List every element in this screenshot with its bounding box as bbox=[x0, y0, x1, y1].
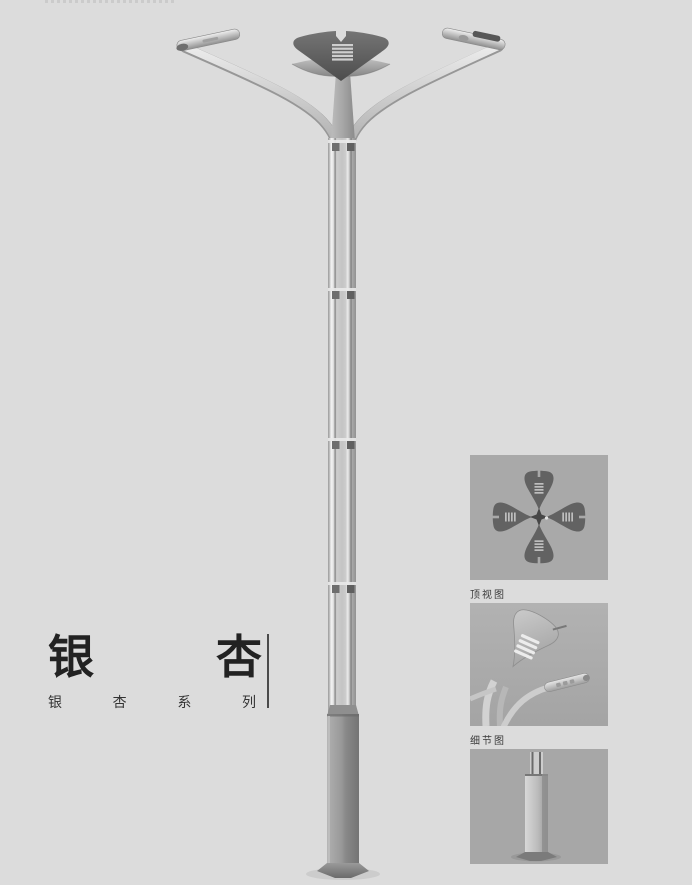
detail-column: 顶视图 bbox=[470, 455, 608, 864]
detail-view-drawing bbox=[470, 603, 608, 726]
title-block: 银 杏 银 杏 系 列 bbox=[48, 632, 262, 712]
base-view-image bbox=[470, 749, 608, 864]
detail-view-image bbox=[470, 603, 608, 726]
top-view-image bbox=[470, 455, 608, 580]
lamp-crown-leaf bbox=[293, 31, 388, 81]
left-lamp-head bbox=[175, 28, 241, 52]
subtitle-char-4: 列 bbox=[242, 692, 256, 712]
lamp-pole bbox=[328, 138, 356, 714]
title-char-2: 杏 bbox=[216, 632, 262, 683]
title-divider-line bbox=[267, 634, 269, 708]
right-lamp-head bbox=[441, 24, 506, 51]
subtitle-char-2: 杏 bbox=[113, 692, 127, 712]
lamp-base bbox=[306, 705, 380, 880]
catalog-page: 银 杏 银 杏 系 列 bbox=[0, 0, 692, 885]
top-view-label: 顶视图 bbox=[470, 580, 608, 603]
title-char-1: 银 bbox=[48, 632, 94, 683]
top-view-drawing bbox=[470, 455, 608, 580]
detail-view-label: 细节图 bbox=[470, 726, 608, 749]
base-view-drawing bbox=[470, 749, 608, 864]
subtitle-char-3: 系 bbox=[177, 692, 191, 712]
lamp-stem bbox=[331, 72, 355, 142]
subtitle-char-1: 银 bbox=[48, 692, 62, 712]
page-title: 银 杏 bbox=[48, 632, 262, 683]
series-subtitle: 银 杏 系 列 bbox=[48, 692, 256, 712]
